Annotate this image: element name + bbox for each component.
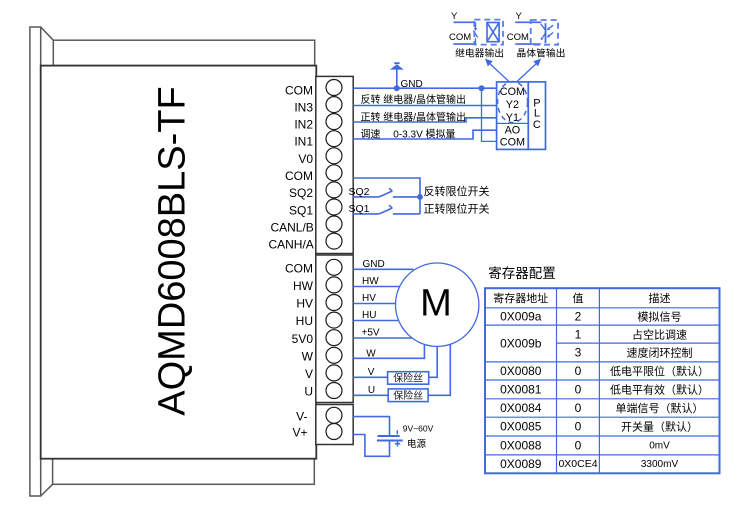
svg-text:SQ2: SQ2 xyxy=(289,186,313,200)
svg-text:1: 1 xyxy=(575,328,582,342)
svg-text:速度闭环控制: 速度闭环控制 xyxy=(627,346,693,360)
svg-text:U: U xyxy=(368,385,375,396)
svg-text:IN1: IN1 xyxy=(294,135,313,149)
svg-text:HV: HV xyxy=(296,297,313,311)
svg-text:0X0081: 0X0081 xyxy=(500,383,542,397)
svg-text:COM: COM xyxy=(285,169,313,183)
svg-text:模拟信号: 模拟信号 xyxy=(638,310,682,324)
svg-text:GND: GND xyxy=(363,259,385,270)
svg-text:值: 值 xyxy=(573,292,584,305)
svg-text:SQ1: SQ1 xyxy=(289,203,313,217)
svg-text:0: 0 xyxy=(575,439,582,453)
svg-text:V: V xyxy=(368,367,375,378)
svg-text:继电器输出: 继电器输出 xyxy=(455,47,504,60)
svg-text:SQ1: SQ1 xyxy=(349,203,370,215)
svg-text:AQMD6008BLS-TF: AQMD6008BLS-TF xyxy=(152,86,194,415)
svg-text:0: 0 xyxy=(575,383,582,397)
svg-text:V+: V+ xyxy=(292,426,307,440)
svg-text:AO: AO xyxy=(505,124,521,136)
svg-text:0X009a: 0X009a xyxy=(500,310,542,324)
svg-text:0X0089: 0X0089 xyxy=(500,457,542,471)
svg-text:0X0084: 0X0084 xyxy=(500,401,542,415)
svg-text:COM: COM xyxy=(285,261,313,275)
svg-text:反转 继电器/晶体管输出: 反转 继电器/晶体管输出 xyxy=(361,93,467,106)
svg-text:HW: HW xyxy=(362,276,379,287)
svg-text:COM: COM xyxy=(500,136,525,148)
svg-text:0X0080: 0X0080 xyxy=(500,364,542,378)
svg-text:反转限位开关: 反转限位开关 xyxy=(424,184,490,198)
svg-text:W: W xyxy=(366,348,376,359)
svg-text:Y2: Y2 xyxy=(506,99,519,111)
svg-text:HU: HU xyxy=(296,314,313,328)
svg-text:0X0085: 0X0085 xyxy=(500,420,542,434)
svg-text:开关量（默认）: 开关量（默认） xyxy=(621,420,698,434)
svg-text:V0: V0 xyxy=(298,152,313,166)
svg-text:U: U xyxy=(304,385,313,399)
svg-text:寄存器地址: 寄存器地址 xyxy=(493,291,548,305)
svg-text:V: V xyxy=(305,367,313,381)
svg-text:V-: V- xyxy=(296,410,307,424)
svg-text:CANH/A: CANH/A xyxy=(268,238,313,252)
svg-text:低电平有效（默认）: 低电平有效（默认） xyxy=(610,383,709,397)
svg-text:Y: Y xyxy=(516,11,523,22)
svg-text:保险丝: 保险丝 xyxy=(393,372,423,385)
svg-text:GND: GND xyxy=(401,79,423,90)
svg-text:CANL/B: CANL/B xyxy=(270,221,313,235)
svg-text:单端信号（默认）: 单端信号（默认） xyxy=(616,402,704,415)
svg-text:W: W xyxy=(302,349,314,363)
svg-text:0X0CE4: 0X0CE4 xyxy=(558,458,597,470)
svg-text:COM: COM xyxy=(449,32,471,43)
svg-text:调速 0-3.3V 模拟量: 调速 0-3.3V 模拟量 xyxy=(361,127,456,140)
svg-text:寄存器配置: 寄存器配置 xyxy=(488,265,556,281)
svg-text:COM: COM xyxy=(285,83,313,97)
svg-text:0: 0 xyxy=(575,364,582,378)
svg-text:0mV: 0mV xyxy=(649,441,670,452)
svg-text:正转 继电器/晶体管输出: 正转 继电器/晶体管输出 xyxy=(361,110,467,123)
svg-text:M: M xyxy=(420,283,452,325)
svg-text:SQ2: SQ2 xyxy=(349,186,370,198)
svg-text:0X0088: 0X0088 xyxy=(500,439,542,453)
svg-text:COM: COM xyxy=(507,32,529,43)
svg-text:C: C xyxy=(533,119,541,131)
svg-text:IN3: IN3 xyxy=(294,100,313,114)
svg-text:9V~60V: 9V~60V xyxy=(403,423,434,433)
svg-text:+5V: +5V xyxy=(362,328,380,339)
svg-text:L: L xyxy=(534,108,540,120)
svg-text:0: 0 xyxy=(575,401,582,415)
svg-text:电源: 电源 xyxy=(407,438,427,450)
svg-text:3300mV: 3300mV xyxy=(641,459,679,470)
svg-text:HU: HU xyxy=(362,310,376,321)
svg-text:HW: HW xyxy=(293,279,314,293)
svg-text:COM: COM xyxy=(500,86,525,98)
svg-text:保险丝: 保险丝 xyxy=(393,389,423,402)
svg-text:晶体管输出: 晶体管输出 xyxy=(517,47,566,60)
svg-text:HV: HV xyxy=(362,293,376,304)
svg-text:IN2: IN2 xyxy=(294,118,313,132)
svg-text:3: 3 xyxy=(575,346,582,360)
svg-text:0: 0 xyxy=(575,420,582,434)
svg-text:5V0: 5V0 xyxy=(292,332,314,346)
svg-text:描述: 描述 xyxy=(649,291,671,305)
svg-text:Y: Y xyxy=(451,11,458,22)
svg-text:正转限位开关: 正转限位开关 xyxy=(424,201,490,215)
svg-text:0X009b: 0X009b xyxy=(500,337,542,351)
svg-text:占空比调速: 占空比调速 xyxy=(632,328,687,342)
svg-text:低电平限位（默认）: 低电平限位（默认） xyxy=(610,364,709,378)
svg-text:2: 2 xyxy=(575,310,582,324)
